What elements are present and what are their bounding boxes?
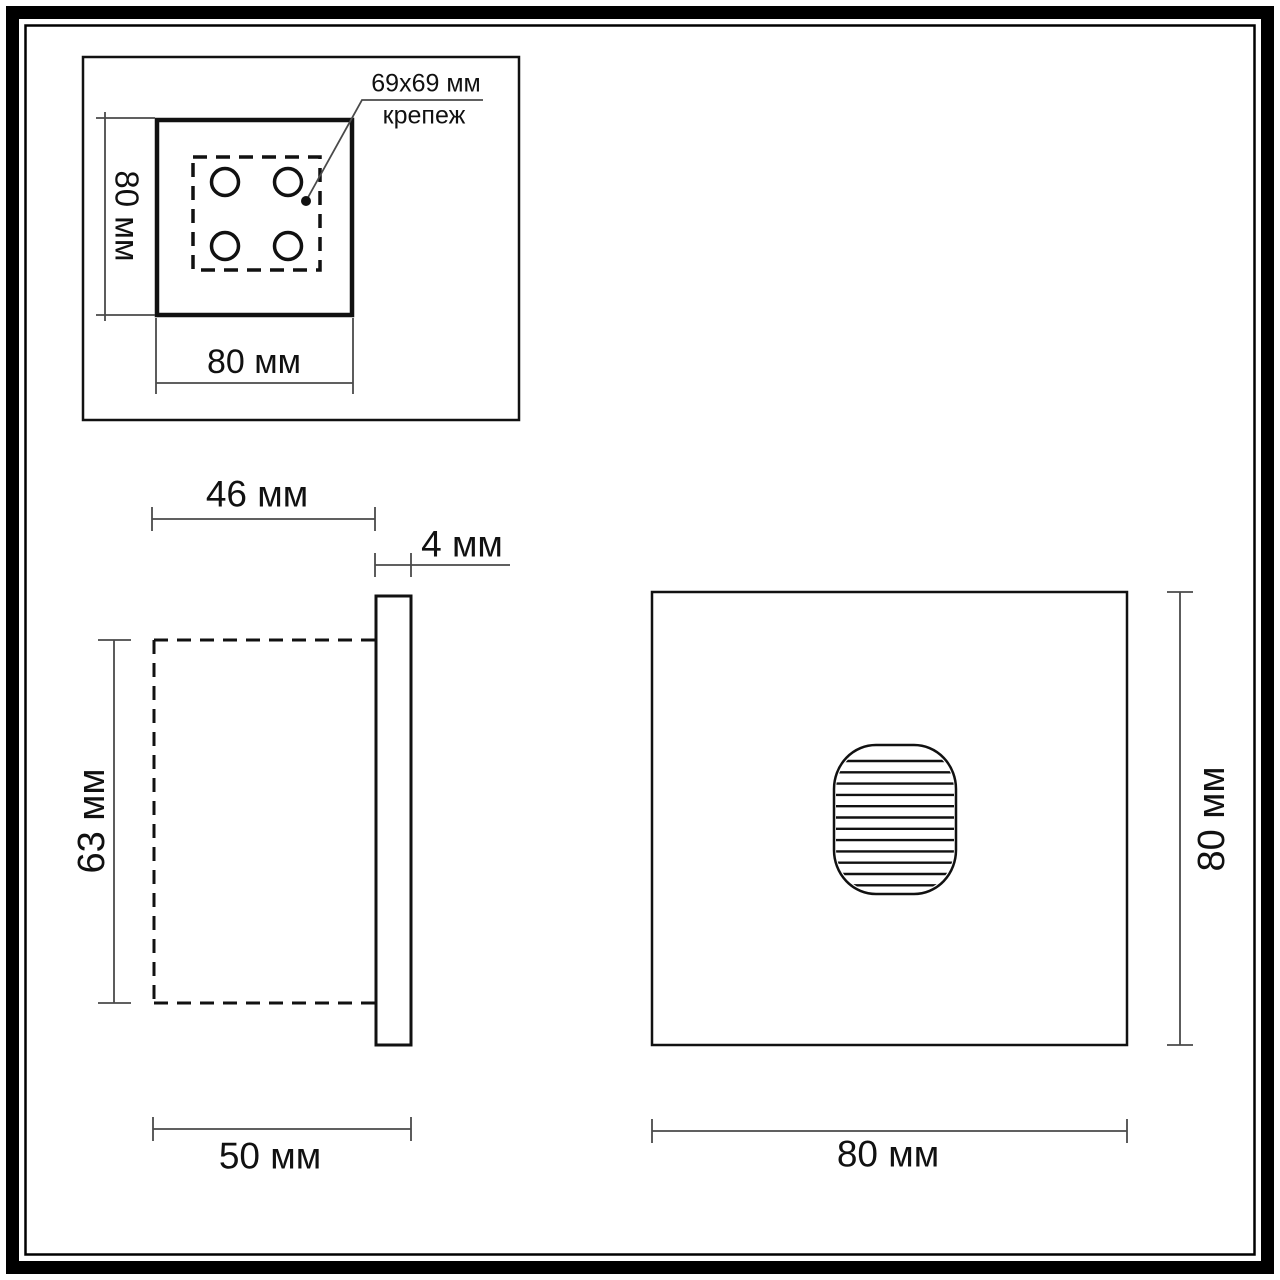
top-view-width-label: 80 мм: [207, 345, 301, 379]
plate-thickness-label: 4 мм: [421, 526, 503, 563]
louver-grille-lines: [830, 761, 960, 885]
front-view-linework: [652, 592, 1193, 1143]
recessed-body-dashed-outline: [154, 640, 376, 1003]
side-view-linework: [98, 507, 510, 1141]
technical-drawing-page: 80 мм 80 мм 69x69 мм крепеж 46 мм 4 мм 6…: [0, 0, 1280, 1280]
mounting-holes: [212, 169, 302, 260]
leader-dot: [301, 196, 311, 206]
front-width-label: 80 мм: [837, 1136, 939, 1173]
top-view-fixture-outline: [157, 120, 352, 315]
total-depth-label: 50 мм: [219, 1138, 321, 1175]
front-height-dimension: [1167, 592, 1193, 1045]
drawing-linework: [0, 0, 1280, 1280]
body-depth-label: 46 мм: [206, 476, 308, 513]
faceplate-outline: [376, 596, 411, 1045]
louver-window-outline: [834, 745, 956, 894]
top-view-height-label: 80 мм: [111, 170, 144, 261]
front-height-label: 80 мм: [1193, 766, 1231, 871]
mount-note-caption-label: крепеж: [383, 104, 466, 129]
body-height-label: 63 мм: [73, 768, 111, 873]
mount-note-size-label: 69x69 мм: [371, 72, 480, 97]
